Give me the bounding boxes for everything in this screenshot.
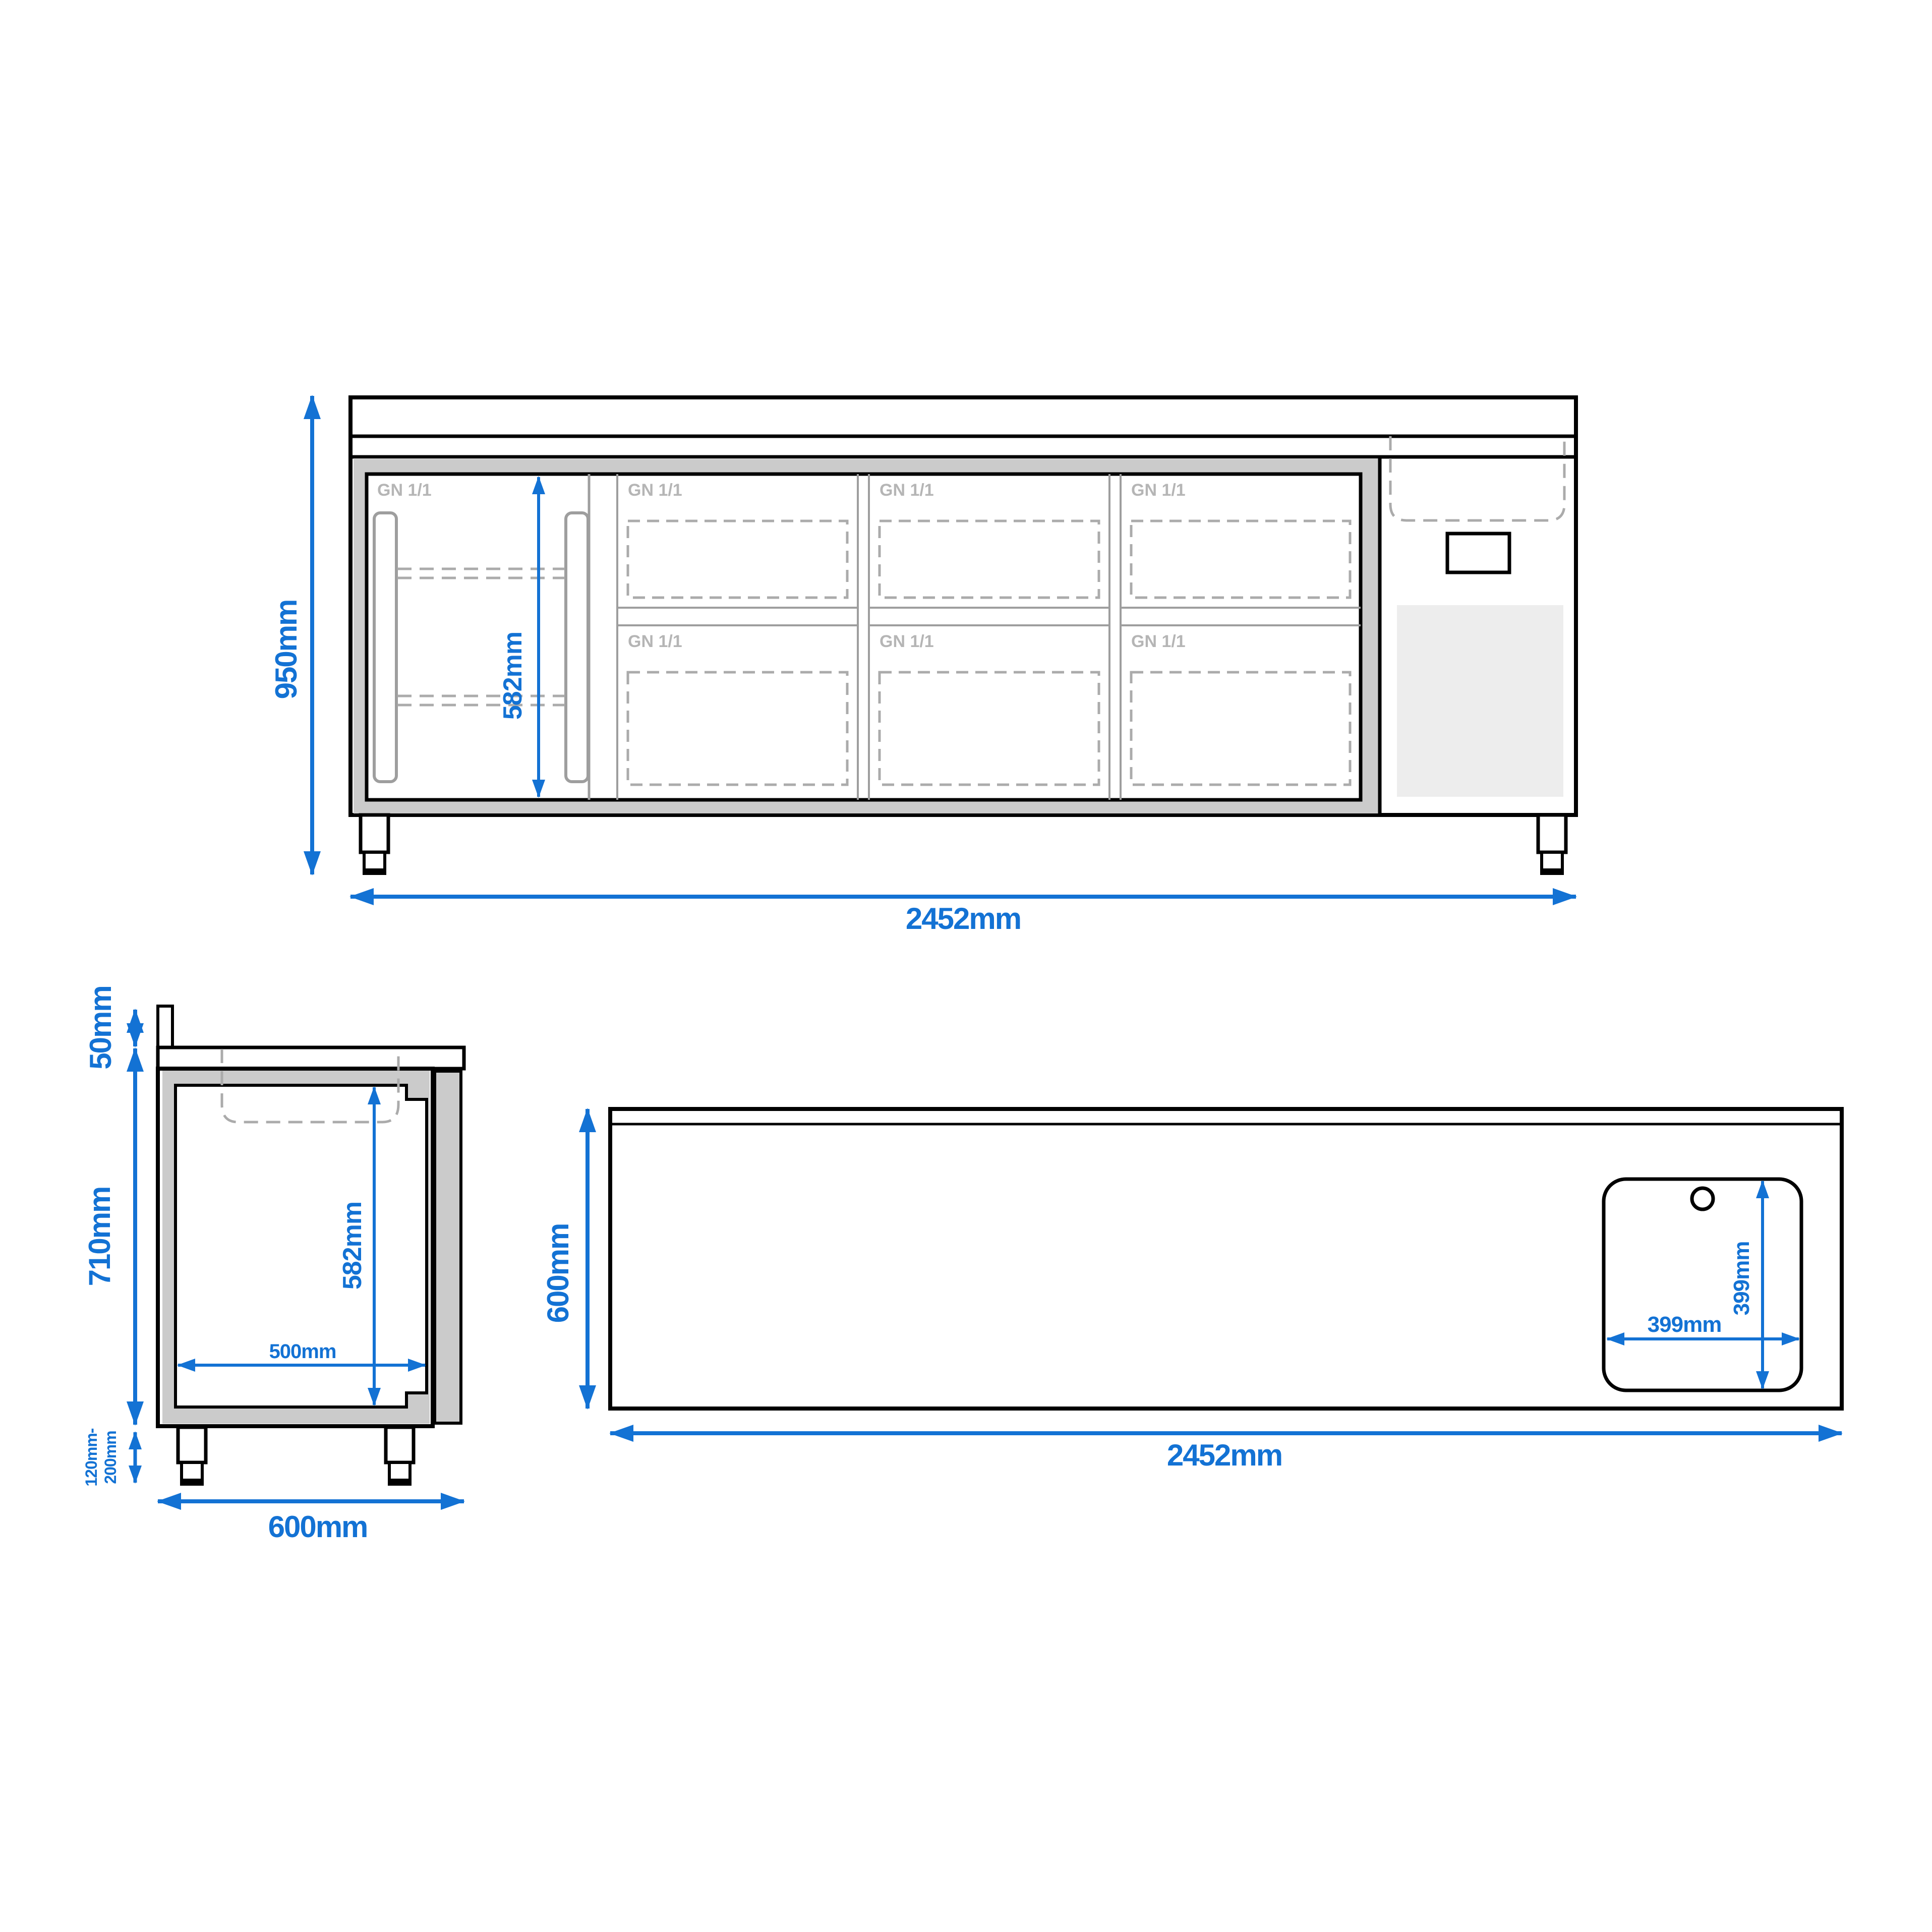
dimension-label-backsplash-height: 50mm: [84, 986, 118, 1069]
gn-label-door: GN 1/1: [377, 481, 432, 500]
side-door-profile: [435, 1071, 461, 1423]
dimension-label-top-width: 2452mm: [1167, 1438, 1282, 1472]
side-backsplash: [158, 1006, 172, 1047]
dimension-label-top-depth: 600mm: [541, 1224, 575, 1323]
leg: [361, 815, 388, 852]
technical-drawing: GN 1/1 GN 1/1 GN 1/1 GN 1/1 GN 1/1: [0, 0, 1932, 1932]
control-display: [1447, 534, 1509, 572]
gn-label-drawer: GN 1/1: [628, 481, 682, 500]
dimension-label-leg-height-line2: 200mm: [101, 1431, 120, 1484]
leg-foot-cap: [389, 1479, 410, 1484]
dimension-label-interior-height-side: 582mm: [338, 1202, 367, 1290]
dimension-label-overall-width: 2452mm: [906, 902, 1021, 935]
dimension-label-sink-depth: 399mm: [1729, 1242, 1754, 1316]
gn-label-drawer: GN 1/1: [880, 481, 934, 500]
leg-foot-cap: [182, 1479, 202, 1484]
dimension-label-interior-height: 582mm: [498, 632, 528, 720]
dimension-label-interior-depth: 500mm: [269, 1340, 336, 1363]
side-countertop: [158, 1047, 464, 1069]
dimension-label-leg-height: 120mm- 200mm: [82, 1428, 120, 1486]
leg-foot-cap: [1542, 868, 1562, 873]
dimension-label-leg-height-line1: 120mm-: [82, 1428, 100, 1486]
gn-label-drawer: GN 1/1: [880, 632, 934, 651]
leg: [178, 1427, 206, 1462]
dimension-label-overall-depth: 600mm: [268, 1510, 368, 1544]
dimension-label-body-height: 710mm: [83, 1187, 116, 1286]
gn-label-drawer: GN 1/1: [1131, 481, 1186, 500]
side-legs: [178, 1427, 414, 1484]
leg: [386, 1427, 414, 1462]
gn-label-drawer: GN 1/1: [1131, 632, 1186, 651]
dimension-label-overall-height: 950mm: [269, 600, 303, 699]
dimension-label-sink-width: 399mm: [1648, 1312, 1722, 1337]
front-view: GN 1/1 GN 1/1 GN 1/1 GN 1/1 GN 1/1: [269, 396, 1576, 935]
top-view: 600mm 2452mm 399mm 399mm: [541, 1109, 1842, 1472]
side-view: 50mm 710mm 120mm- 200mm 600mm 582mm 500m…: [82, 986, 464, 1544]
ventilation-grille: [1397, 605, 1563, 797]
drawing-canvas: GN 1/1 GN 1/1 GN 1/1 GN 1/1 GN 1/1: [0, 0, 1932, 1932]
leg-foot-cap: [364, 868, 385, 873]
gn-label-drawer: GN 1/1: [628, 632, 682, 651]
leg: [1538, 815, 1566, 852]
front-legs: [361, 815, 1566, 873]
